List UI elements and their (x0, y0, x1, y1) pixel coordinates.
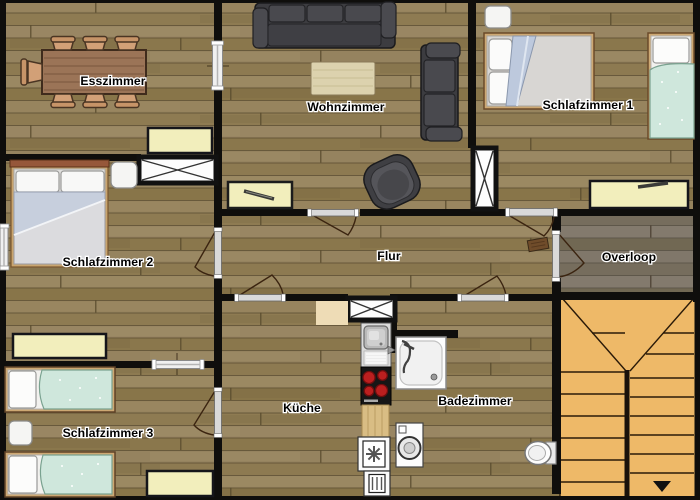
svg-text:Esszimmer: Esszimmer (80, 74, 145, 88)
svg-text:Schlafzimmer 2: Schlafzimmer 2 (63, 255, 154, 269)
svg-text:Schlafzimmer 3: Schlafzimmer 3 (63, 426, 154, 440)
svg-text:Küche: Küche (283, 401, 321, 415)
svg-text:Schlafzimmer 1: Schlafzimmer 1 (543, 98, 634, 112)
svg-text:Overloop: Overloop (602, 250, 656, 264)
svg-text:Flur: Flur (377, 249, 401, 263)
svg-text:Badezimmer: Badezimmer (438, 394, 512, 408)
svg-text:Wohnzimmer: Wohnzimmer (307, 100, 384, 114)
